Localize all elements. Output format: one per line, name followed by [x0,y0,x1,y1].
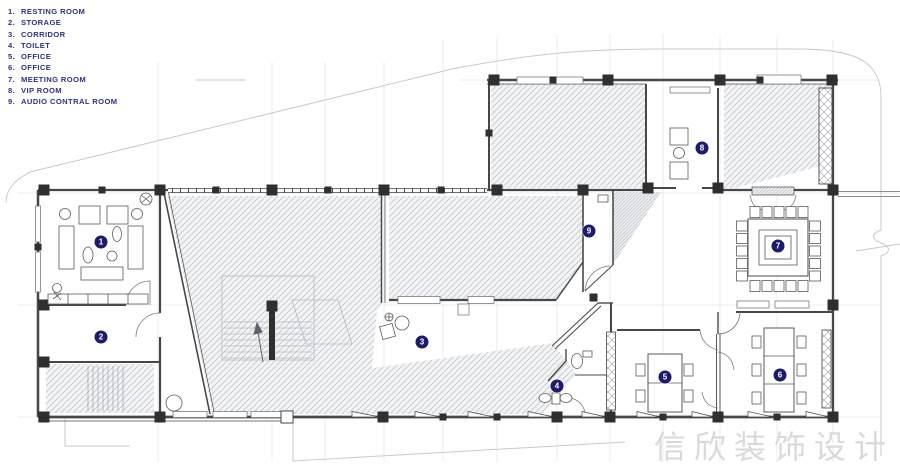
legend-item-number: 7. [8,74,21,85]
legend-item: 1.RESTING ROOM [8,6,118,17]
legend-item-label: MEETING ROOM [21,74,86,85]
legend-item-label: VIP ROOM [21,85,62,96]
legend-item: 3.CORRIDOR [8,29,118,40]
legend-item-label: STORAGE [21,17,61,28]
legend-item-number: 6. [8,62,21,73]
legend-item-number: 1. [8,6,21,17]
legend-item: 5.OFFICE [8,51,118,62]
legend-item: 6.OFFICE [8,62,118,73]
legend-item-label: CORRIDOR [21,29,66,40]
legend-item: 7.MEETING ROOM [8,74,118,85]
watermark-text: 信欣装饰设计 [654,422,894,468]
legend-item-number: 2. [8,17,21,28]
legend-item-number: 4. [8,40,21,51]
legend-item-label: OFFICE [21,51,51,62]
room-legend: 1.RESTING ROOM2.STORAGE3.CORRIDOR4.TOILE… [8,6,118,108]
legend-item: 4.TOILET [8,40,118,51]
legend-item-label: RESTING ROOM [21,6,85,17]
meeting-entrance-mat [752,187,794,195]
legend-item-label: TOILET [21,40,50,51]
legend-item-number: 8. [8,85,21,96]
legend-item-number: 5. [8,51,21,62]
legend-item-label: OFFICE [21,62,51,73]
legend-item-number: 3. [8,29,21,40]
floor-plan-canvas: 1.RESTING ROOM2.STORAGE3.CORRIDOR4.TOILE… [0,0,900,470]
hatched-floor-areas [46,84,833,414]
legend-item: 2.STORAGE [8,17,118,28]
legend-item: 9.AUDIO CONTRAL ROOM [8,96,118,107]
floor-plan-drawing [0,0,900,470]
legend-item-label: AUDIO CONTRAL ROOM [21,96,118,107]
legend-item-number: 9. [8,96,21,107]
white-column [281,411,293,423]
legend-item: 8.VIP ROOM [8,85,118,96]
